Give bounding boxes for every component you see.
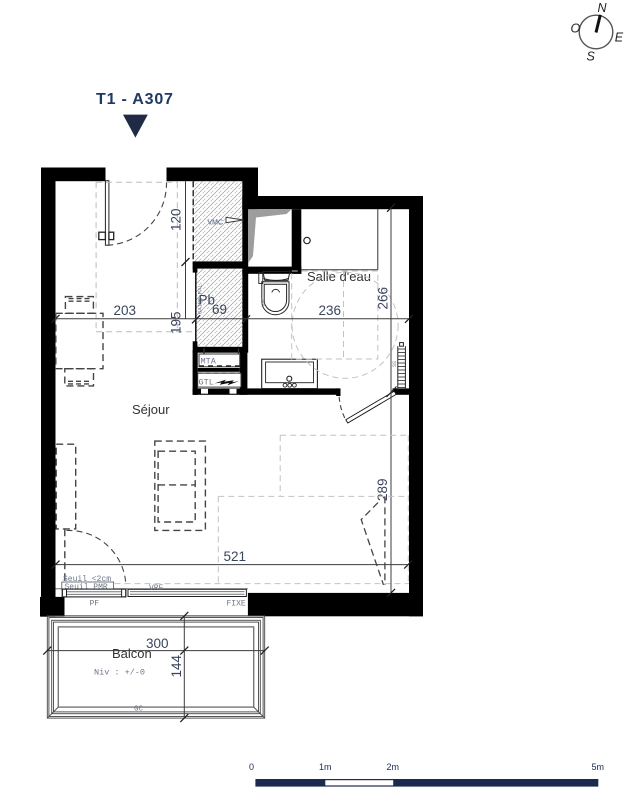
svg-text:FIXE: FIXE <box>227 600 246 609</box>
svg-text:266: 266 <box>376 287 391 310</box>
svg-text:0: 0 <box>249 762 254 772</box>
svg-text:GC: GC <box>134 706 144 714</box>
svg-text:VRE: VRE <box>149 584 164 593</box>
svg-text:521: 521 <box>224 549 247 564</box>
svg-text:1m: 1m <box>319 762 332 772</box>
svg-text:VMC: VMC <box>261 297 267 306</box>
svg-text:236: 236 <box>319 303 342 318</box>
svg-text:PF: PF <box>90 600 100 609</box>
svg-text:Séjour: Séjour <box>132 402 170 417</box>
svg-text:O: O <box>571 22 581 36</box>
svg-text:69: 69 <box>212 302 227 317</box>
svg-text:SS: SS <box>392 361 398 367</box>
svg-text:Balcon: Balcon <box>112 646 152 661</box>
svg-text:289: 289 <box>375 478 390 501</box>
svg-text:195: 195 <box>169 311 184 334</box>
svg-text:VMC: VMC <box>208 220 224 227</box>
svg-text:120: 120 <box>169 208 184 231</box>
svg-text:N: N <box>598 1 608 15</box>
svg-text:S: S <box>587 50 596 64</box>
svg-text:5m: 5m <box>592 762 605 772</box>
svg-text:T1 - A307: T1 - A307 <box>96 91 174 108</box>
svg-text:2m: 2m <box>387 762 400 772</box>
svg-text:203: 203 <box>114 303 137 318</box>
svg-text:Niv : +/-0: Niv : +/-0 <box>94 668 145 678</box>
svg-text:E: E <box>615 31 624 45</box>
svg-text:MTA: MTA <box>201 357 217 367</box>
svg-text:144: 144 <box>169 654 184 677</box>
svg-text:GTL: GTL <box>199 378 214 388</box>
